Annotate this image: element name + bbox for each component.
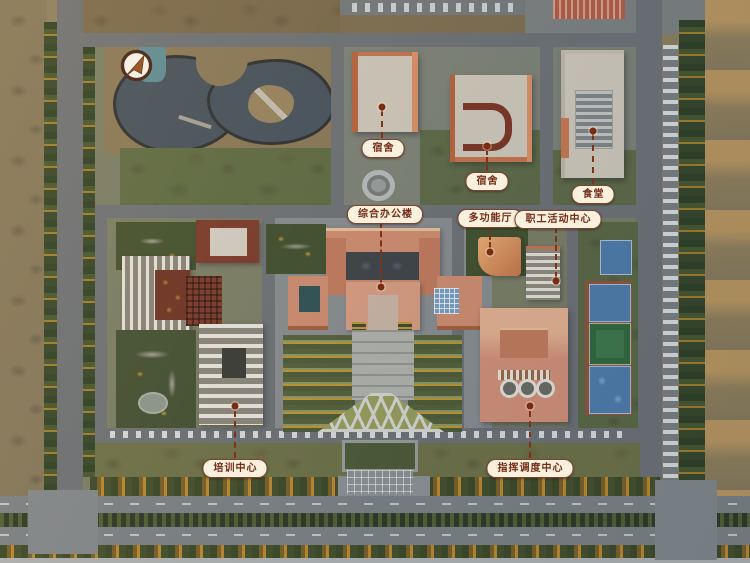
desert-right — [705, 0, 750, 563]
office-tower-west — [325, 238, 346, 295]
road-left-vertical — [57, 0, 83, 563]
label-dispatch-center: 指挥调度中心 — [487, 459, 574, 478]
leader-dispatch — [529, 411, 531, 458]
desert-left — [0, 0, 46, 563]
leader-dormitory-1 — [381, 110, 383, 138]
gate-lawn — [345, 443, 415, 469]
dirt-top-mid — [340, 14, 525, 34]
dot-multifunction — [487, 249, 494, 256]
dirt-top-left — [83, 0, 343, 34]
label-multifunction-hall: 多功能厅 — [458, 209, 523, 228]
building-dispatch-center — [480, 308, 568, 422]
building-multifunction-hall — [478, 237, 521, 276]
label-dormitory-1: 宿舍 — [362, 139, 405, 158]
canteen-wall-accent — [561, 118, 569, 158]
basketball-court-2 — [589, 366, 631, 414]
label-canteen: 食堂 — [572, 185, 615, 204]
office-skylight-grid — [434, 288, 459, 314]
label-training-center: 培训中心 — [203, 459, 268, 478]
intersection-left — [28, 490, 98, 554]
auditorium-pavilion — [155, 270, 190, 320]
aerial-campus-photo: 宿舍 宿舍 食堂 综合办公楼 多功能厅 职工活动中心 培训中心 指挥调度中心 — [0, 0, 750, 563]
campus-road-v6 — [95, 218, 107, 443]
axis-walkway — [352, 330, 414, 400]
tree-row-right — [679, 20, 705, 490]
dispatch-circle-3 — [539, 382, 552, 395]
label-dormitory-2: 宿舍 — [466, 172, 509, 191]
leader-staff-activity — [555, 227, 557, 278]
leader-canteen — [592, 134, 594, 184]
dispatch-circle-2 — [521, 382, 534, 395]
courtyard-hall-inner — [210, 228, 247, 256]
tree-row-boulevard-south — [0, 545, 750, 558]
basketball-court-3 — [600, 240, 632, 275]
tree-row-left-outer — [44, 22, 57, 552]
dispatch-rooftop-block — [500, 328, 548, 358]
garden-mid-west — [266, 224, 326, 274]
campus-road-v1 — [331, 47, 344, 205]
label-office-building: 综合办公楼 — [347, 205, 423, 224]
parking-right-cars — [663, 45, 678, 480]
leader-dormitory-2 — [486, 149, 488, 171]
dot-dispatch — [527, 403, 534, 410]
plaza-circle — [362, 170, 395, 201]
north-arrow-icon — [120, 49, 153, 82]
building-dormitory-1 — [352, 52, 418, 132]
building-top-right — [553, 0, 625, 19]
lane-marks-north — [0, 503, 750, 505]
leader-training — [234, 411, 236, 458]
dot-staff-activity — [553, 278, 560, 285]
basketball-court-1 — [589, 284, 631, 322]
dispatch-circle-1 — [503, 382, 516, 395]
dot-office — [378, 284, 385, 291]
lawn-lake-south — [120, 148, 332, 205]
lane-marks-south — [0, 534, 750, 536]
leader-office — [380, 222, 382, 283]
road-top-horizontal — [57, 33, 662, 47]
training-hall-core — [222, 348, 246, 378]
dot-dormitory-1 — [379, 104, 386, 111]
dot-canteen — [590, 128, 597, 135]
pavement-bottom-edge — [0, 558, 750, 563]
tennis-court — [589, 323, 631, 365]
gate-hatch-court — [347, 470, 413, 494]
parked-cars-lower-road — [110, 431, 630, 438]
leader-multifunction — [489, 226, 491, 248]
label-staff-activity-center: 职工活动中心 — [515, 210, 602, 229]
dot-dormitory-2 — [484, 143, 491, 150]
parked-trucks-top — [352, 3, 517, 12]
garden-pond — [138, 392, 168, 414]
tree-row-left-inner — [83, 47, 95, 477]
office-pool — [299, 286, 320, 312]
dispatch-windows — [498, 370, 550, 380]
boulevard-median — [0, 513, 750, 527]
intersection-right — [655, 480, 717, 560]
canteen-skylights — [575, 90, 613, 149]
building-lattice-block — [186, 276, 222, 326]
campus-road-v2 — [540, 47, 553, 205]
dot-training — [232, 403, 239, 410]
